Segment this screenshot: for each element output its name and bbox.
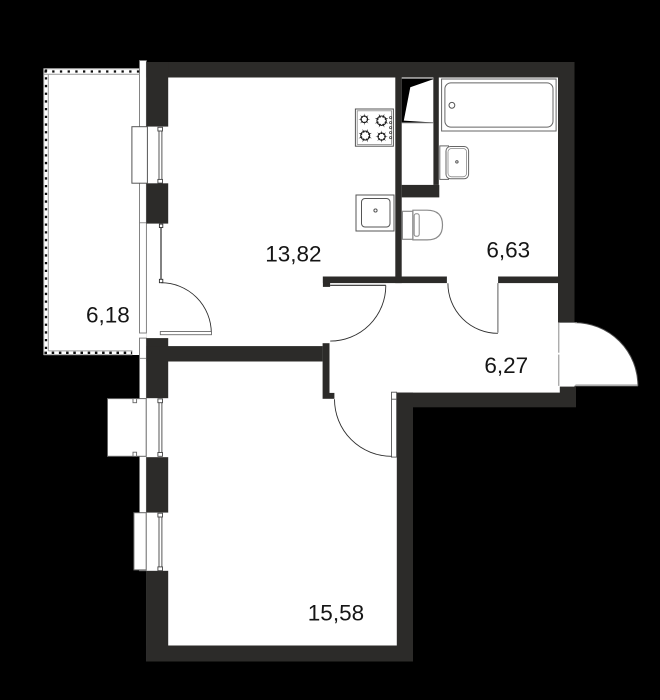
svg-text:6,18: 6,18 bbox=[86, 303, 130, 328]
svg-text:6,27: 6,27 bbox=[484, 353, 528, 378]
svg-text:15,58: 15,58 bbox=[308, 601, 364, 626]
svg-text:13,82: 13,82 bbox=[265, 242, 321, 267]
svg-text:6,63: 6,63 bbox=[486, 238, 530, 263]
